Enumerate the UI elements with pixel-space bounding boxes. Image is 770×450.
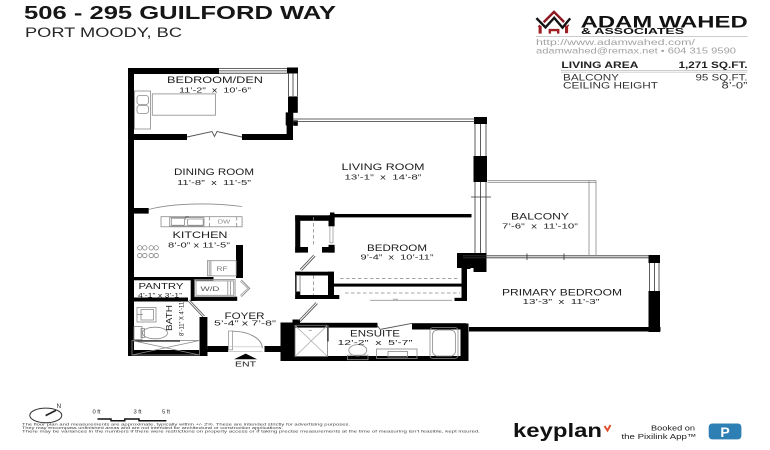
svg-text:N: N [57,403,62,410]
svg-text:PANTRY: PANTRY [139,282,185,291]
svg-text:8’-0”: 8’-0” [722,80,748,90]
svg-text:BALCONY: BALCONY [511,212,569,222]
svg-text:506 - 295 GUILFORD WAY: 506 - 295 GUILFORD WAY [24,3,336,23]
svg-text:PORT MOODY, BC: PORT MOODY, BC [25,25,182,40]
svg-text:& ASSOCIATES: & ASSOCIATES [581,27,685,36]
svg-text:DINING ROOM: DINING ROOM [174,167,254,177]
svg-text:8’-0” x 11’-5”: 8’-0” x 11’-5” [168,241,231,250]
svg-text:keyplan: keyplan [513,421,602,442]
svg-text:There may be variances in the: There may be variances in the numbers if… [22,430,480,434]
svg-text:RF: RF [217,266,228,273]
svg-text:8’-11” X 4’-11”: 8’-11” X 4’-11” [180,300,186,336]
svg-text:the Pixilink App™: the Pixilink App™ [622,432,697,441]
svg-text:9’-4” x 10’-11”: 9’-4” x 10’-11” [361,253,435,262]
svg-text:0 ft: 0 ft [92,410,100,416]
svg-text:KITCHEN: KITCHEN [173,230,228,240]
svg-text:11’-2” x 10’-6”: 11’-2” x 10’-6” [179,86,252,95]
svg-text:W/D: W/D [201,286,220,293]
svg-text:DW: DW [218,220,232,226]
svg-text:1,271 SQ.FT.: 1,271 SQ.FT. [679,60,748,71]
svg-text:LIVING AREA: LIVING AREA [561,60,638,71]
svg-text:5’-4” x 7’-8”: 5’-4” x 7’-8” [214,319,277,328]
svg-text:BEDROOM: BEDROOM [367,243,427,253]
svg-text:13’-1” x 14’-8”: 13’-1” x 14’-8” [345,173,423,182]
svg-text:7’-6” x 11’-10”: 7’-6” x 11’-10” [502,222,579,231]
svg-text:LIVING ROOM: LIVING ROOM [342,162,425,172]
svg-text:12’-2” x 5’-7”: 12’-2” x 5’-7” [338,338,414,347]
svg-text:CEILING HEIGHT: CEILING HEIGHT [563,80,659,90]
svg-text:11’-8” x 11’-5”: 11’-8” x 11’-5” [177,178,252,187]
svg-text:ENT: ENT [235,360,257,369]
svg-text:3 ft: 3 ft [133,410,141,416]
svg-text:BATH: BATH [164,305,174,331]
svg-text:BEDROOM/DEN: BEDROOM/DEN [167,75,263,85]
svg-text:5 ft: 5 ft [162,410,170,416]
svg-text:adamwahed@remax.net • 604 315: adamwahed@remax.net • 604 315 9590 [536,46,736,56]
svg-text:ENSUITE: ENSUITE [350,329,400,339]
svg-text:4’-1” x 3’-1”: 4’-1” x 3’-1” [138,293,182,300]
svg-text:P: P [720,424,729,440]
svg-text:13’-3” x 11’-3”: 13’-3” x 11’-3” [523,297,601,306]
